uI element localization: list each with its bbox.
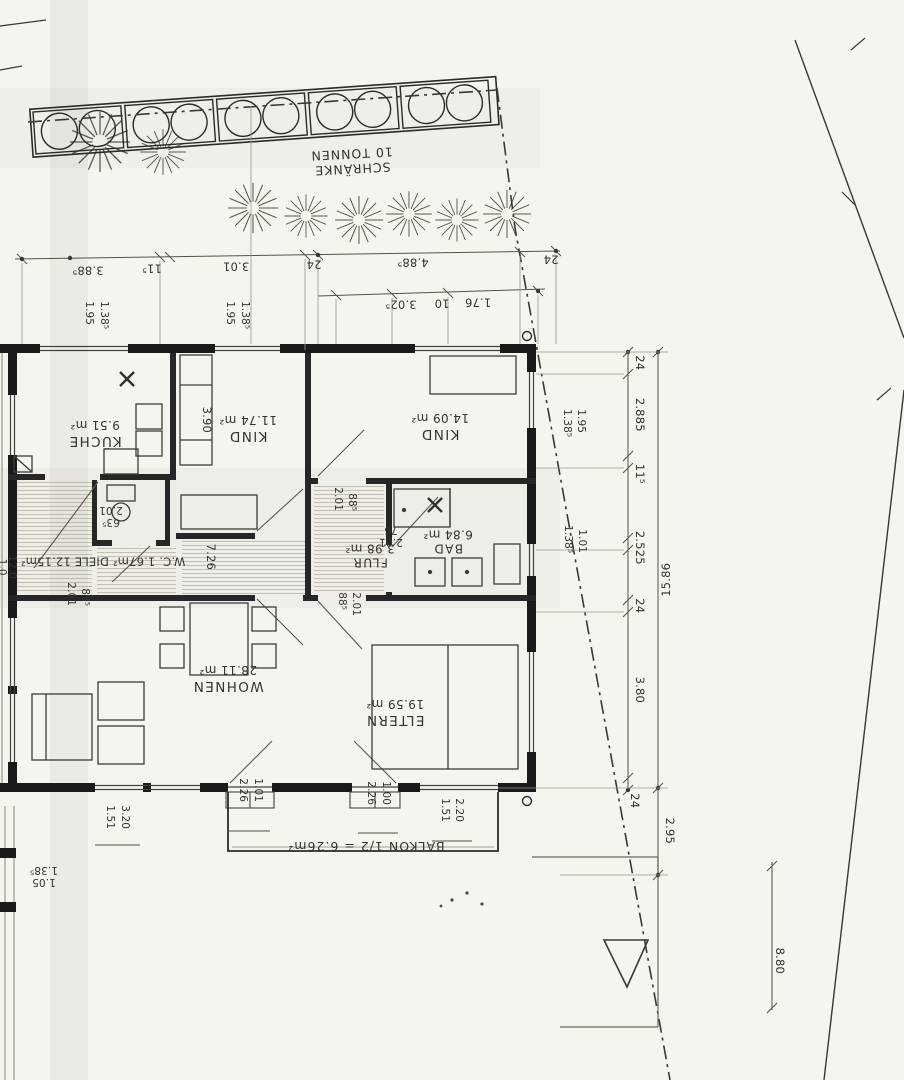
dim-right: 24 <box>627 788 641 814</box>
room-label-kind2: KIND 14.09 m² <box>385 411 495 441</box>
room-label-kueche: KÜCHE 9.51 m² <box>40 418 150 448</box>
dim-right-total: 15.86 <box>660 554 674 606</box>
dim-right: 3.80 <box>632 670 646 710</box>
dim-door: 2.01 <box>332 483 344 515</box>
dim-opening: 1.51 <box>439 794 451 826</box>
dim-window: 1.95 <box>575 405 587 437</box>
dim-opening: 2.26 <box>365 777 377 809</box>
dim-room: 3.90 <box>199 401 213 439</box>
dim-top: 24 <box>301 257 327 271</box>
dim-top: 3.88⁵ <box>65 263 111 277</box>
dim-top: 3.02⁵ <box>379 297 423 311</box>
dim-room: 7.26 <box>203 538 217 576</box>
dim-right: 24 <box>632 350 646 376</box>
dim-opening: 2.20 <box>453 794 465 826</box>
dim-window: 1.38⁵ <box>239 299 251 331</box>
dim-right: 2.525 <box>632 524 646 572</box>
dim-window: 1.38⁵ <box>562 523 574 555</box>
dim-opening: 3.20 <box>119 801 131 833</box>
room-label-wc-diele: W.C. 1.67m² DIELE 12.15m² <box>3 554 203 568</box>
survey-dots <box>440 891 484 907</box>
dim-window: 1.95 <box>83 297 95 329</box>
dim-door: 88⁵ <box>336 585 348 617</box>
dim-right: 11⁵ <box>632 459 646 489</box>
dimension-lines <box>15 246 777 1013</box>
dim-right: 24 <box>632 593 646 619</box>
dim-window: 1.38⁵ <box>98 299 110 331</box>
dim-door: 2.01 <box>65 578 77 610</box>
dim-door: 88⁵ <box>79 581 91 613</box>
room-label-wohnen: WOHNEN 28.11 m² <box>163 663 293 693</box>
dim-plot: 8.80 <box>772 940 786 982</box>
dim-door: 2.01 <box>350 588 362 620</box>
dim-opening: 1.051.38⁵ <box>21 863 67 888</box>
garage-outline <box>532 857 658 1027</box>
dim-window: 1.38⁵ <box>561 407 573 439</box>
dim-window: 1.01 <box>576 525 588 557</box>
dim-opening: 1.01 <box>252 774 264 806</box>
dim-door: 63⁵2.01 <box>93 503 129 528</box>
dim-top: 11⁵ <box>135 261 169 275</box>
room-label-balkon: BALKON 1/2 = 6.26m² <box>246 838 486 853</box>
dim-top: 24 <box>538 252 564 266</box>
room-label-eltern: ELTERN 19.59 m² <box>335 697 455 727</box>
dim-door: 2.0176 <box>373 523 409 548</box>
dim-door: 88⁵ <box>346 486 358 518</box>
dim-opening: 1.51 <box>104 801 116 833</box>
dim-top: 10 <box>430 296 454 310</box>
dim-top: 4.88⁵ <box>390 255 436 269</box>
dim-right: 2.885 <box>632 391 646 439</box>
adjacent-unit-walls <box>0 344 16 1080</box>
boundary-post <box>523 332 532 806</box>
dim-top: 1.76 <box>460 295 496 309</box>
dim-edge: 12.0 <box>6 552 18 582</box>
floor-plan-sheet: SCHRÄNKE 10 TONNEN KÜCHE 9.51 m² KIND 11… <box>0 0 904 1080</box>
dim-top: 3.01 <box>216 259 256 273</box>
dim-balcony-depth: 2.95 <box>662 811 676 851</box>
dim-opening: 1.00 <box>380 777 392 809</box>
triangle-mark <box>604 940 648 987</box>
room-label-bad: BAD 6.84 m² <box>406 527 490 555</box>
dim-opening: 2.26 <box>237 774 249 806</box>
dim-window: 1.95 <box>224 297 236 329</box>
